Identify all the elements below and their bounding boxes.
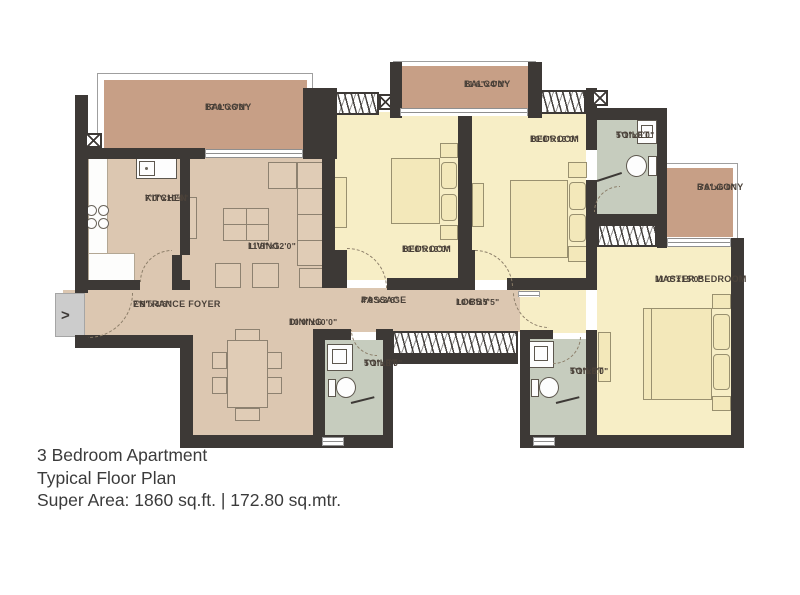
room-dims: 5'1"x8'0" [616, 130, 654, 141]
kitchen-counter-corner [88, 253, 135, 281]
room-dims: 5'1"x8'0" [570, 366, 608, 377]
balcony-top-left-frame [97, 73, 313, 153]
room-dims: 10'0"x10'0" [289, 317, 338, 328]
dining-chair [267, 377, 282, 394]
room-dims: 7'9"x4'6" [133, 299, 171, 310]
wc-bowl [539, 377, 559, 398]
dresser [334, 177, 347, 228]
room-dims: 10'6"x5'5" [456, 297, 499, 308]
bed [651, 308, 712, 400]
dresser [472, 183, 484, 227]
nightstand [568, 246, 587, 262]
wall [657, 218, 667, 248]
pillow [569, 182, 586, 210]
shaft-box [379, 94, 392, 110]
wall [528, 62, 542, 118]
nightstand [440, 225, 458, 240]
bed [510, 180, 568, 258]
wall [335, 250, 347, 288]
nightstand [712, 294, 731, 309]
pillow [713, 354, 730, 390]
entrance-arrow-icon: > [61, 308, 70, 323]
wall [392, 355, 518, 364]
window-master-balcony [667, 238, 731, 247]
dining-chair [267, 352, 282, 369]
wall [180, 335, 193, 448]
room-dims: 7'0"x10'0" [145, 193, 188, 204]
wall [88, 280, 140, 290]
wc-tank [648, 156, 657, 176]
plan-title: 3 Bedroom Apartment [37, 444, 341, 467]
room-dims: 11'8"x12'0" [248, 241, 296, 252]
pillow [569, 214, 586, 242]
sink-drain-dot [145, 167, 148, 170]
wall [586, 330, 597, 435]
window-toilet-bottom-middle [533, 437, 555, 446]
wardrobe-hatch-bedroom-2 [540, 90, 586, 114]
plan-subtitle: Typical Floor Plan [37, 467, 341, 490]
dining-chair [212, 352, 227, 369]
room-dims: 5'1"x8'0" [364, 358, 402, 369]
wc-bowl [336, 377, 356, 398]
window-bedrooms-balcony [400, 108, 528, 116]
coffee-table [223, 208, 269, 241]
room-dims: 10'0"x13'0" [402, 244, 451, 255]
room-dims: 5'6"x6'0" [697, 182, 735, 193]
shaft-box [85, 133, 102, 148]
floor-plan: BALCONY 17'0"x6'0" BALCONY 11'6"x4'0" BA… [0, 0, 800, 595]
wc-tank [531, 379, 539, 397]
pouf [252, 263, 279, 288]
pillow [441, 162, 457, 189]
title-block: 3 Bedroom Apartment Typical Floor Plan S… [37, 444, 341, 512]
wall [586, 214, 658, 225]
washbasin-bowl [332, 349, 347, 364]
room-dims: 11'0"x15'0" [655, 274, 703, 285]
wall [313, 330, 325, 448]
plan-super-area: Super Area: 1860 sq.ft. | 172.80 sq.mtr. [37, 489, 341, 512]
wall [586, 108, 667, 120]
wardrobe-hatch-lobby [392, 331, 518, 355]
wardrobe-hatch-bedroom-1 [335, 92, 379, 115]
balcony-right-frame [662, 163, 738, 242]
bed [391, 158, 440, 224]
wall [657, 108, 667, 218]
wc-tank [328, 379, 336, 397]
pillow [713, 314, 730, 350]
entrance-porch [55, 293, 85, 337]
nightstand [712, 396, 731, 411]
wall [172, 255, 182, 282]
room-dims: 17'0"x6'0" [205, 102, 248, 113]
wall [520, 330, 530, 435]
wall [322, 88, 335, 288]
wall [383, 330, 393, 448]
wall [75, 95, 88, 293]
dining-table [227, 340, 268, 408]
shaft-box [592, 90, 608, 106]
pillow [441, 194, 457, 221]
dining-chair [235, 408, 260, 421]
washbasin-bowl [534, 346, 548, 361]
wardrobe-hatch-master [597, 224, 657, 247]
wc-bowl [626, 155, 647, 177]
wall [586, 180, 597, 290]
dining-chair [212, 377, 227, 394]
wall [731, 238, 744, 448]
room-dims: 11'6"x4'0" [464, 79, 507, 90]
pouf [215, 263, 241, 288]
stove-burner [98, 218, 109, 229]
wall [387, 278, 458, 290]
wall [507, 278, 597, 290]
wall [172, 280, 190, 290]
nightstand [440, 143, 458, 158]
room-dims: 10'0"x13'0" [530, 134, 579, 145]
wall [458, 115, 472, 290]
sofa-corner-seat [268, 162, 297, 189]
window-living [205, 149, 303, 158]
nightstand [568, 162, 587, 178]
stove-burner [98, 205, 109, 216]
dining-chair [235, 329, 260, 341]
room-dims: 4'9"x3'6" [361, 295, 399, 306]
wall [520, 330, 553, 339]
